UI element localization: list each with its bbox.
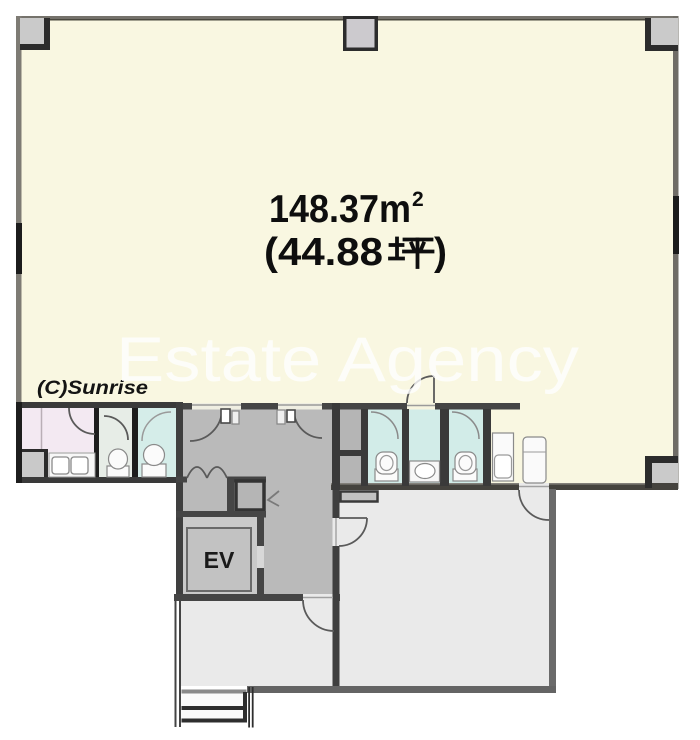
svg-text:EV: EV: [204, 547, 235, 573]
svg-text:148.37m: 148.37m: [269, 188, 411, 231]
svg-text:): ): [434, 231, 447, 274]
svg-text:(44.88: (44.88: [264, 231, 383, 274]
svg-text:Estate Agency: Estate Agency: [116, 325, 580, 395]
svg-text:2: 2: [412, 188, 424, 211]
